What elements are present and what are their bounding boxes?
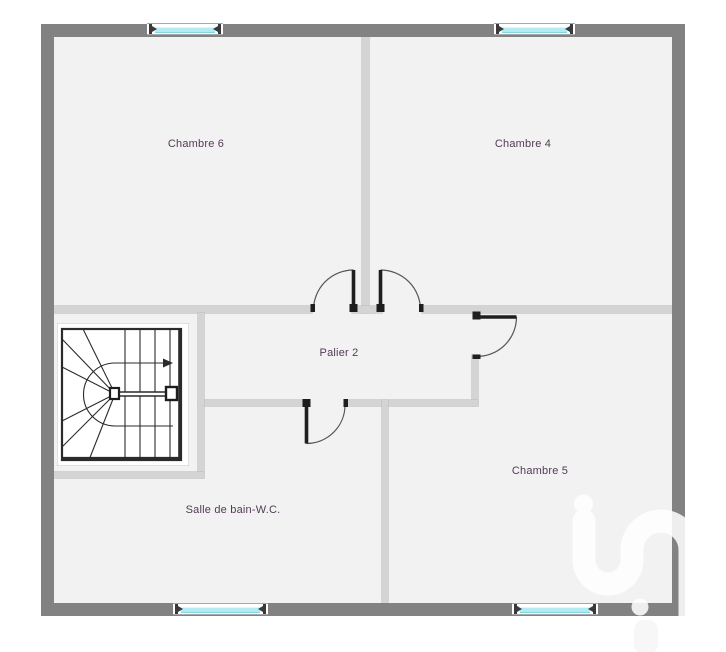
wall-palier-north-right [422, 306, 672, 313]
window-glass [502, 27, 567, 33]
exterior-wall-top [41, 24, 685, 37]
window-cap-right [218, 24, 221, 34]
window-chambre5-icon [512, 603, 598, 615]
room-label-palier: Palier 2 [320, 347, 359, 359]
window-glass [520, 607, 590, 613]
wall-bathroom-east [382, 400, 388, 603]
window-cap-right [593, 604, 596, 614]
room-label-chambre-6: Chambre 6 [168, 138, 224, 150]
window-glass [155, 27, 215, 33]
room-label-chambre-4: Chambre 4 [495, 138, 551, 150]
window-glass [181, 607, 260, 613]
wall-palier-south-right [348, 400, 478, 406]
window-cap-left [149, 24, 152, 34]
wall-stairwell-east [198, 313, 204, 478]
window-cap-left [496, 24, 499, 34]
window-cap-right [263, 604, 266, 614]
wall-palier-north-left [54, 306, 312, 313]
window-cap-left [175, 604, 178, 614]
window-cap-left [514, 604, 517, 614]
window-cap-right [570, 24, 573, 34]
wall-chambre5-west [472, 355, 478, 406]
room-label-salle-de-bain: Salle de bain-W.C. [186, 504, 281, 516]
staircase-icon [57, 323, 189, 466]
window-bathroom-icon [173, 603, 268, 615]
wall-palier-north-stub [352, 306, 382, 313]
floor-plan-canvas: Chambre 6 Chambre 4 Palier 2 Chambre 5 S… [0, 0, 726, 652]
room-label-chambre-5: Chambre 5 [512, 465, 568, 477]
wall-stairwell-south [54, 472, 204, 478]
exterior-wall-right [672, 24, 685, 616]
window-chambre6-icon [147, 23, 223, 35]
wall-between-chambre6-chambre4 [362, 37, 369, 313]
exterior-wall-left [41, 24, 54, 616]
wall-palier-south-left [198, 400, 305, 406]
window-chambre4-icon [494, 23, 575, 35]
